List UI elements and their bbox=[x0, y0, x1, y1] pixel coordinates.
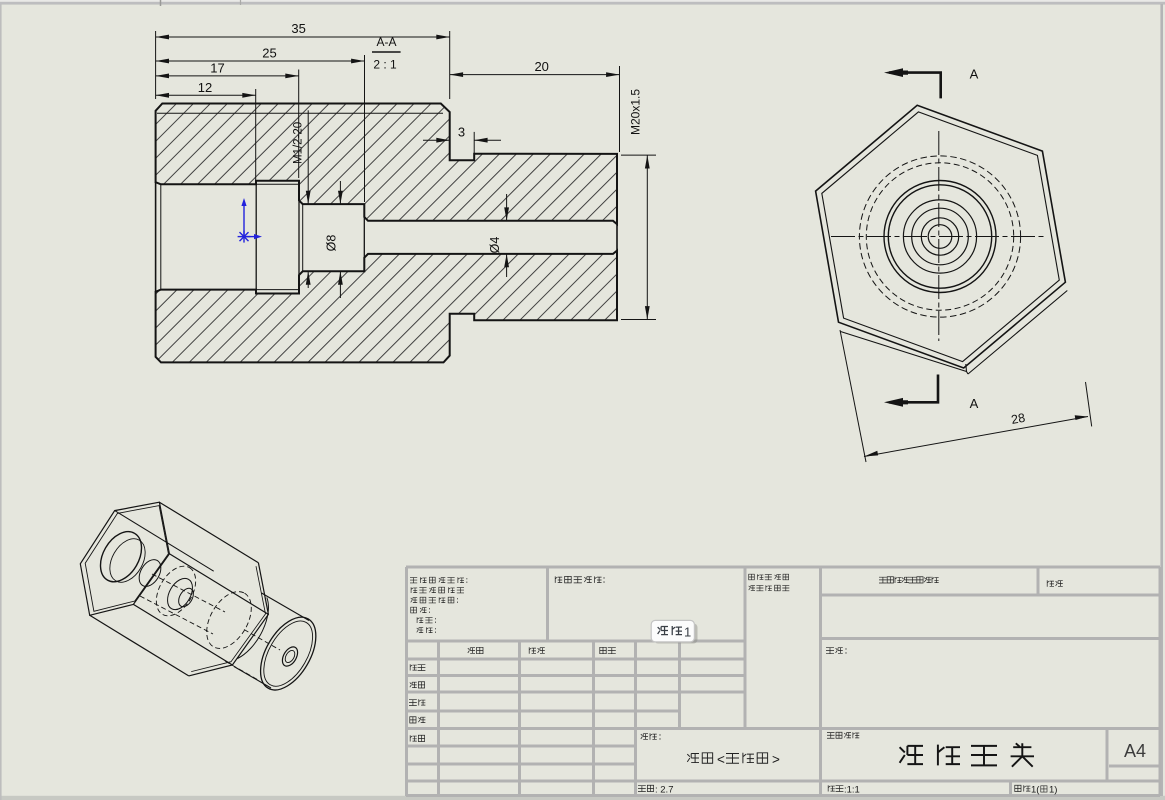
svg-text:Ø4: Ø4 bbox=[488, 237, 502, 254]
svg-text:: 2.7: : 2.7 bbox=[655, 785, 674, 796]
svg-text:25: 25 bbox=[262, 46, 276, 61]
svg-text:Ø8: Ø8 bbox=[325, 235, 339, 252]
svg-text:M20x1.5: M20x1.5 bbox=[629, 89, 643, 135]
svg-text:3: 3 bbox=[458, 125, 465, 140]
svg-text:28: 28 bbox=[1010, 411, 1026, 427]
svg-text:M1/2-20: M1/2-20 bbox=[293, 122, 305, 164]
svg-text:20: 20 bbox=[534, 59, 548, 74]
svg-text:12: 12 bbox=[198, 80, 212, 95]
svg-text:35: 35 bbox=[291, 21, 305, 36]
svg-text:A4: A4 bbox=[1124, 741, 1146, 761]
svg-text:1): 1) bbox=[1049, 785, 1057, 796]
svg-text:2 : 1: 2 : 1 bbox=[373, 58, 397, 72]
svg-text:A-A: A-A bbox=[376, 35, 396, 49]
svg-text:1: 1 bbox=[684, 625, 691, 640]
svg-text:A: A bbox=[970, 67, 979, 82]
svg-text:>: > bbox=[772, 752, 780, 767]
svg-text:17: 17 bbox=[210, 61, 224, 76]
svg-text::1:1: :1:1 bbox=[844, 785, 860, 796]
svg-text:<: < bbox=[717, 752, 725, 767]
svg-text:A: A bbox=[970, 396, 979, 411]
svg-text:1(: 1( bbox=[1031, 785, 1040, 796]
